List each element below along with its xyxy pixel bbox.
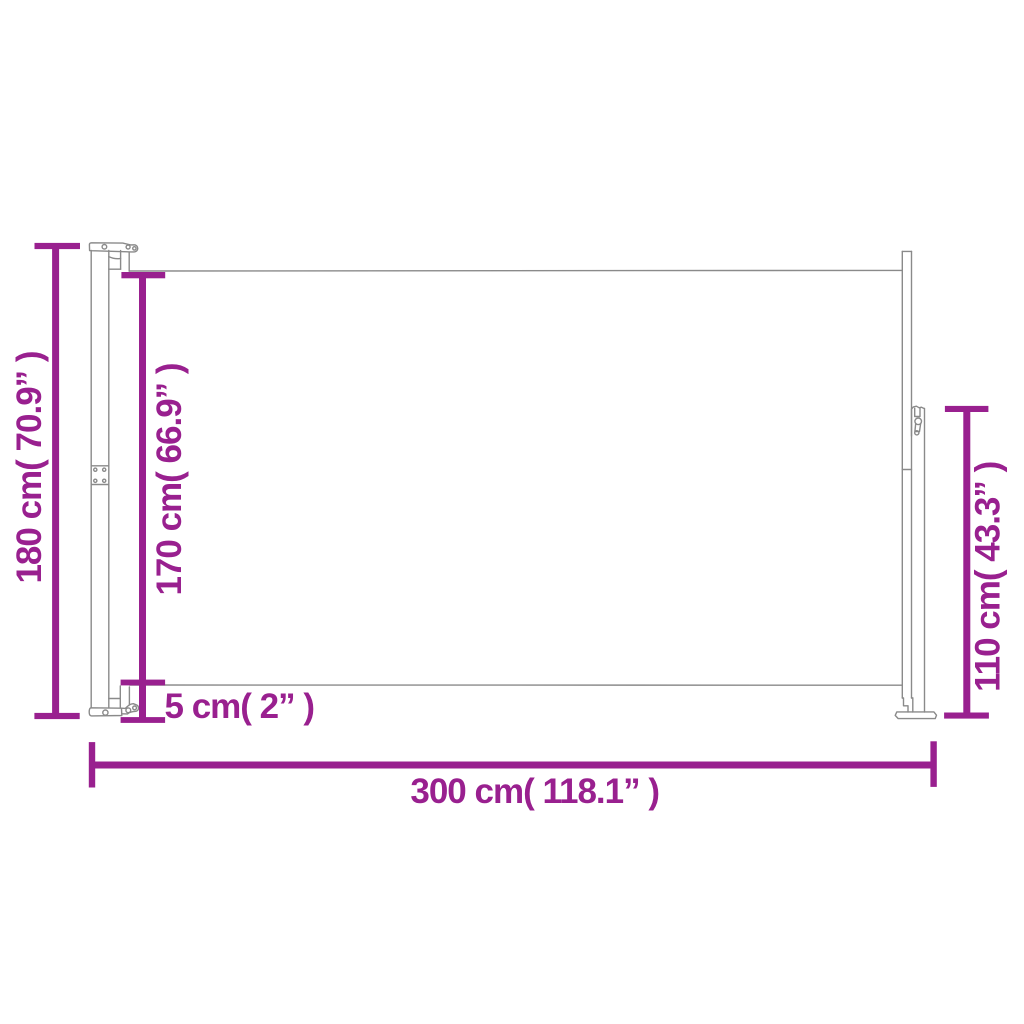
svg-text:300 cm( 118.1” ): 300 cm( 118.1” ) (410, 772, 659, 811)
svg-text:5 cm( 2” ): 5 cm( 2” ) (165, 687, 315, 726)
svg-text:170 cm( 66.9” ): 170 cm( 66.9” ) (150, 363, 189, 595)
svg-text:180 cm( 70.9” ): 180 cm( 70.9” ) (10, 351, 49, 583)
svg-text:110 cm( 43.3” ): 110 cm( 43.3” ) (969, 462, 1008, 692)
